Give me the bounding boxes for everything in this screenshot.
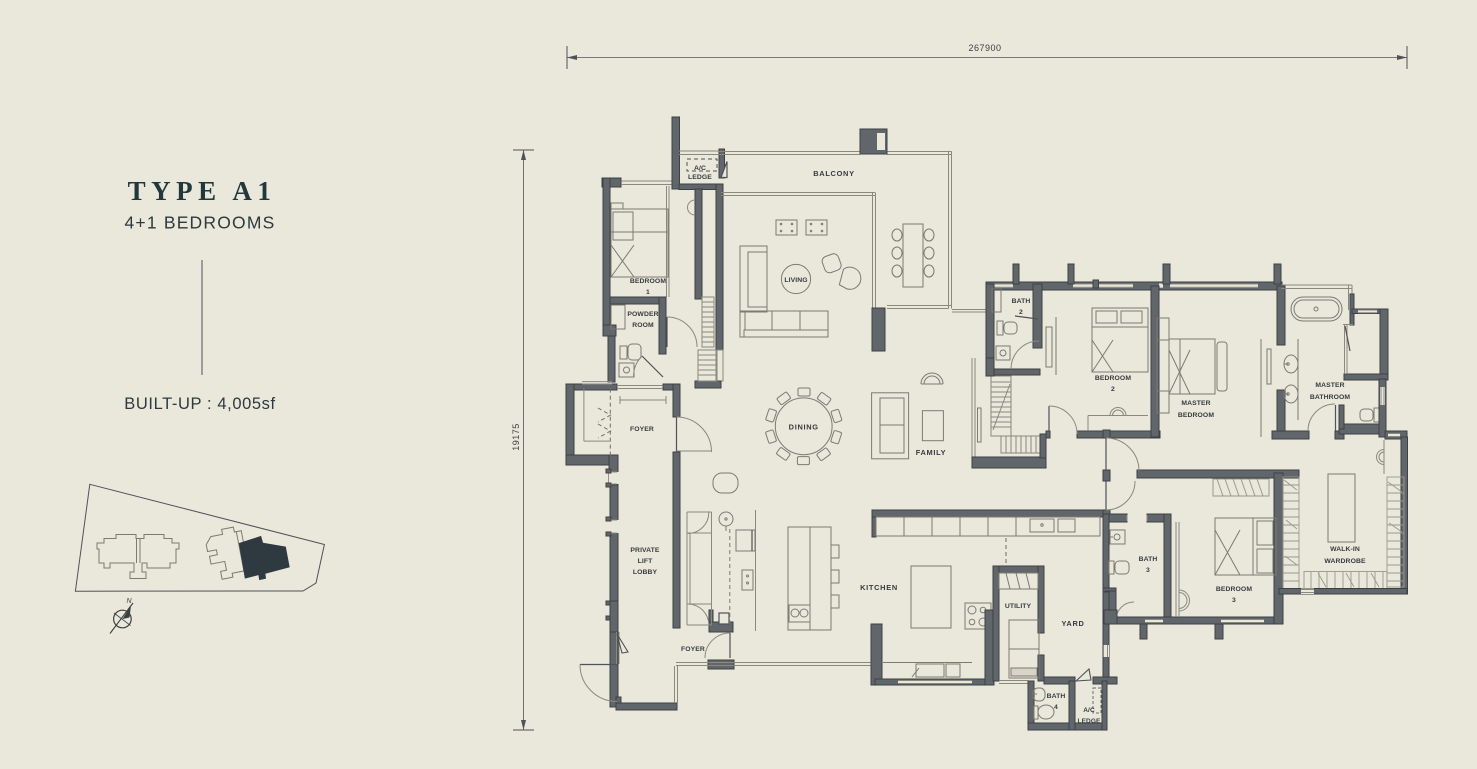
svg-text:267900: 267900 xyxy=(968,43,1001,53)
svg-text:LIFT: LIFT xyxy=(638,558,653,565)
svg-text:ROOM: ROOM xyxy=(632,322,654,329)
svg-text:BEDROOM: BEDROOM xyxy=(1095,375,1131,382)
svg-text:PRIVATE: PRIVATE xyxy=(630,547,660,554)
svg-text:BALCONY: BALCONY xyxy=(813,169,854,178)
svg-text:WALK-IN: WALK-IN xyxy=(1330,546,1360,553)
svg-text:LEDGE: LEDGE xyxy=(1078,718,1101,725)
svg-text:A/C: A/C xyxy=(694,165,706,172)
svg-text:DINING: DINING xyxy=(789,423,819,432)
svg-text:BEDROOM: BEDROOM xyxy=(1216,586,1252,593)
svg-text:KITCHEN: KITCHEN xyxy=(860,583,898,592)
svg-text:FOYER: FOYER xyxy=(630,426,654,433)
svg-text:TYPE A1: TYPE A1 xyxy=(128,176,277,206)
svg-text:2: 2 xyxy=(1019,309,1023,316)
svg-text:BATH: BATH xyxy=(1139,556,1158,563)
svg-text:BATH: BATH xyxy=(1012,298,1031,305)
svg-text:LIVING: LIVING xyxy=(784,277,807,284)
svg-text:BUILT-UP : 4,005sf: BUILT-UP : 4,005sf xyxy=(124,395,275,413)
svg-text:2: 2 xyxy=(1111,386,1115,393)
svg-text:4: 4 xyxy=(1054,704,1058,711)
svg-text:BEDROOM: BEDROOM xyxy=(1178,412,1214,419)
svg-text:MASTER: MASTER xyxy=(1181,400,1210,407)
svg-text:BATHROOM: BATHROOM xyxy=(1310,394,1351,401)
svg-text:YARD: YARD xyxy=(1061,619,1084,628)
svg-text:BATH: BATH xyxy=(1047,693,1066,700)
svg-text:UTILITY: UTILITY xyxy=(1005,603,1032,610)
svg-text:FAMILY: FAMILY xyxy=(916,448,947,457)
svg-text:LEDGE: LEDGE xyxy=(688,174,712,181)
svg-text:19175: 19175 xyxy=(511,423,521,451)
svg-text:3: 3 xyxy=(1232,597,1236,604)
svg-text:A/C: A/C xyxy=(1083,707,1095,714)
svg-text:3: 3 xyxy=(1146,567,1150,574)
svg-text:POWDER: POWDER xyxy=(627,311,658,318)
svg-text:BEDROOM: BEDROOM xyxy=(630,278,666,285)
svg-text:WARDROBE: WARDROBE xyxy=(1324,558,1366,565)
svg-text:FOYER: FOYER xyxy=(681,646,705,653)
svg-text:LOBBY: LOBBY xyxy=(633,569,658,576)
svg-text:4+1 BEDROOMS: 4+1 BEDROOMS xyxy=(124,213,275,233)
svg-text:MASTER: MASTER xyxy=(1315,382,1344,389)
svg-text:1: 1 xyxy=(646,289,650,296)
